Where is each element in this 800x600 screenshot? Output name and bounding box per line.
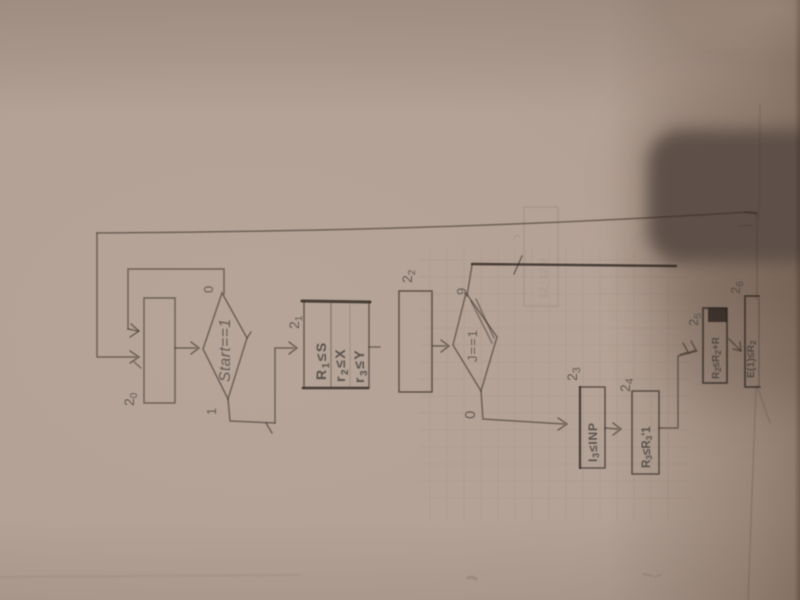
svg-text:21: 21 (286, 315, 305, 329)
svg-text:r2≤X: r2≤X (332, 348, 351, 382)
svg-text:9: 9 (454, 288, 469, 295)
svg-text:R1≤S: R1≤S (313, 341, 332, 380)
svg-text:R3≤R3'1: R3≤R3'1 (641, 426, 654, 468)
svg-text:0: 0 (201, 286, 216, 293)
svg-text:J==1: J==1 (465, 329, 480, 362)
svg-text:0: 0 (462, 411, 479, 419)
svg-text:26: 26 (728, 281, 746, 294)
svg-text:25: 25 (686, 313, 704, 326)
svg-text:I3≤INP: I3≤INP (586, 422, 601, 462)
svg-text:20: 20 (121, 392, 140, 406)
svg-text:22: 22 (399, 269, 418, 283)
svg-text:r3≤Y: r3≤Y (351, 349, 370, 383)
svg-text:24: 24 (617, 378, 636, 392)
svg-text:Start==1: Start==1 (217, 319, 234, 382)
svg-text:E(1)≤R2: E(1)≤R2 (745, 340, 758, 378)
svg-text:1: 1 (204, 408, 219, 415)
svg-text:R2≤R2+R: R2≤R2+R (711, 336, 723, 379)
